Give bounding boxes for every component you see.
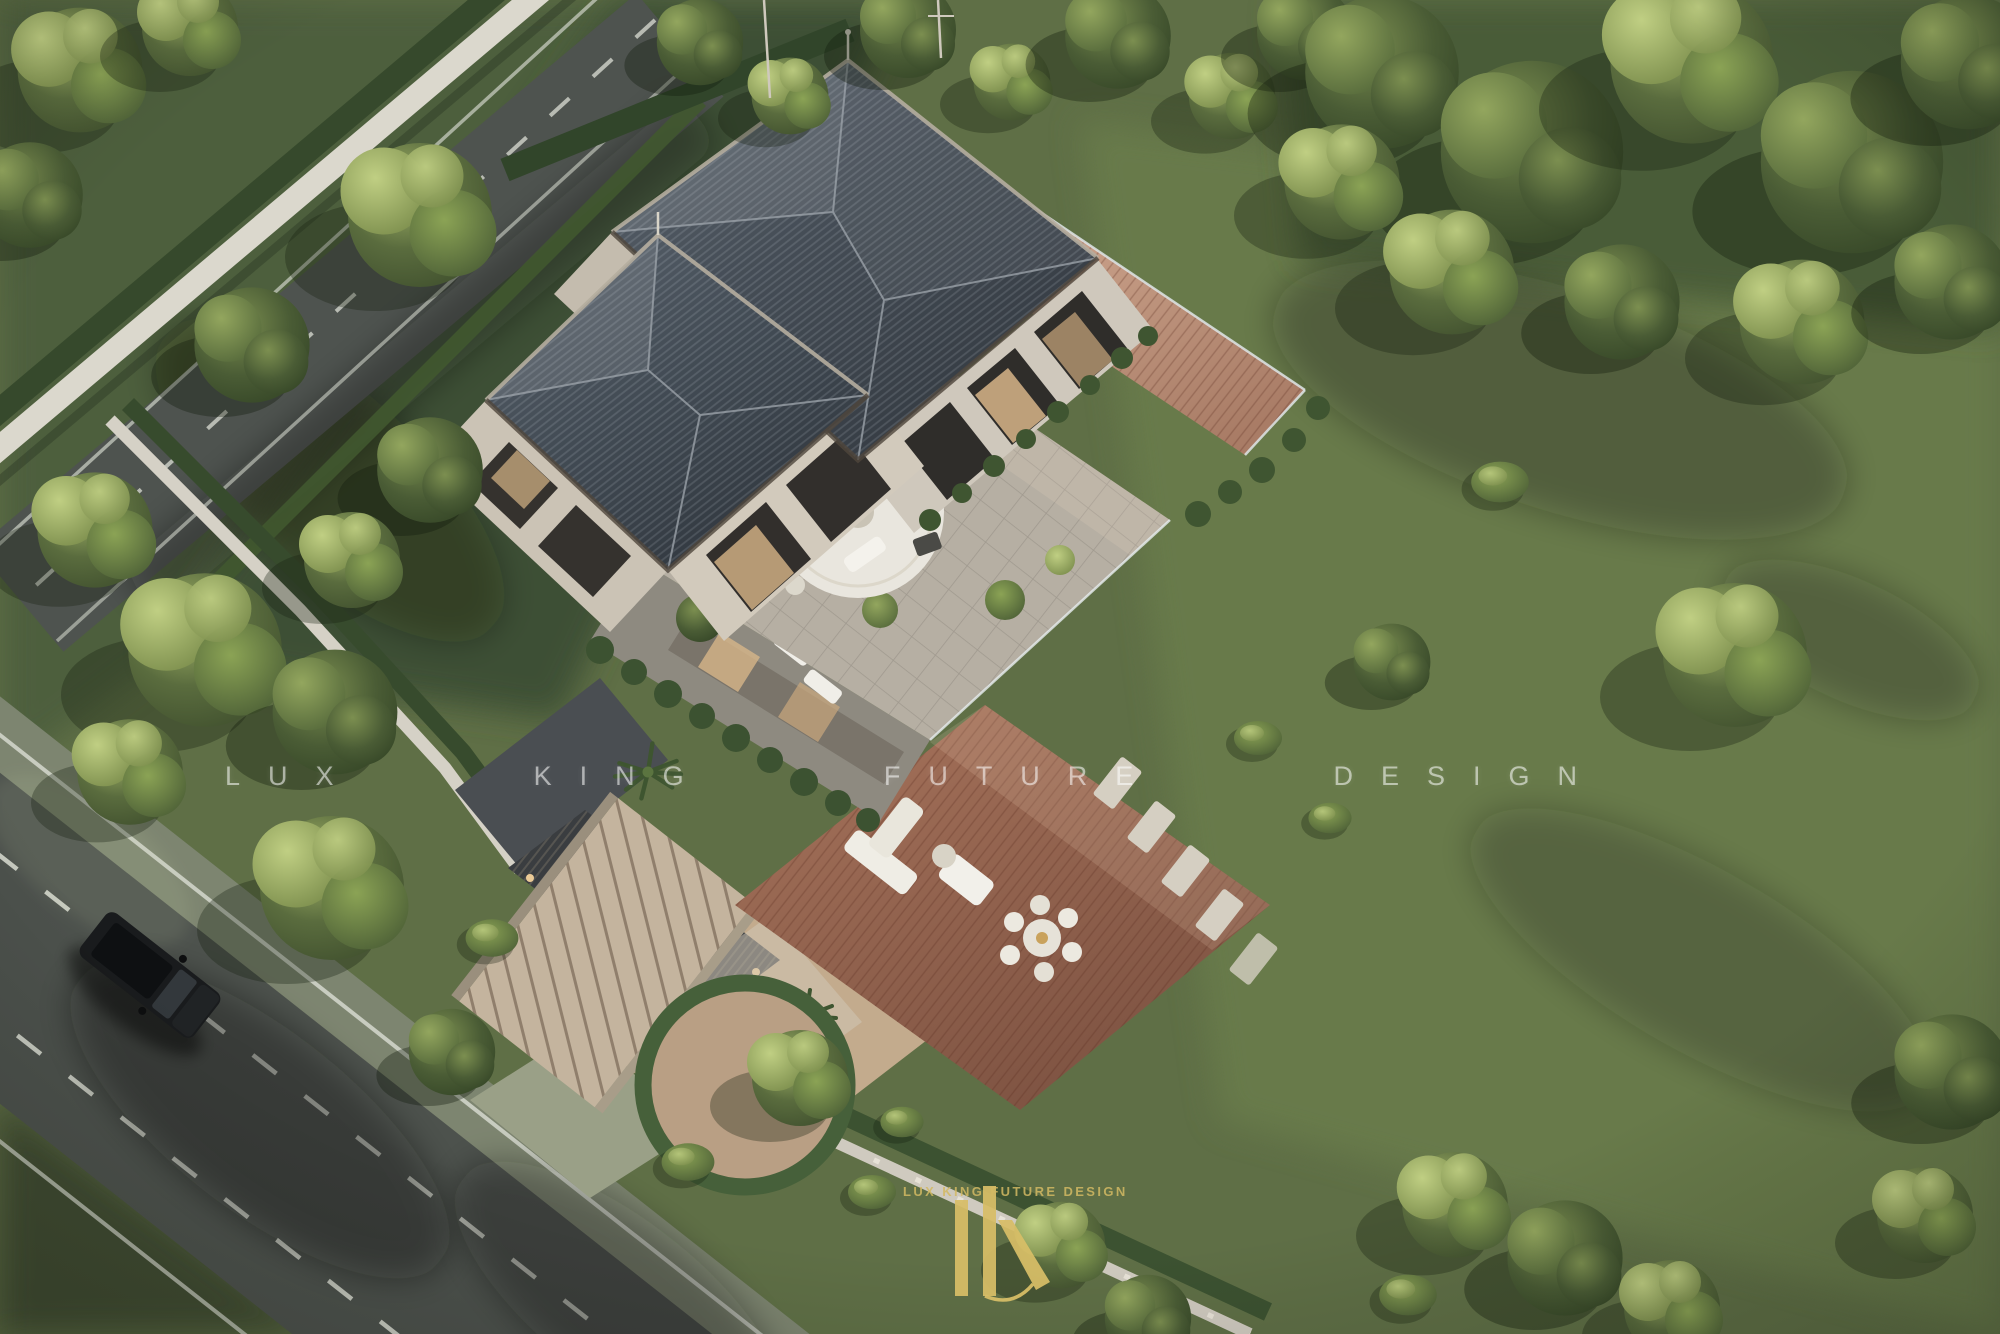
vignette: [0, 0, 2000, 1334]
aerial-render: LUX KING FUTURE DESIGN LUX KING FUTURE D…: [0, 0, 2000, 1334]
scene-canvas: [0, 0, 2000, 1334]
